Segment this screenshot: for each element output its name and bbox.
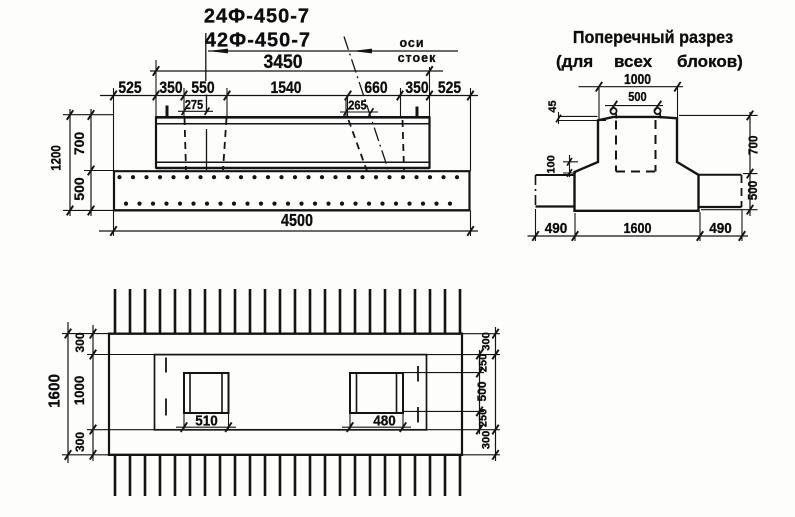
svg-text:350: 350: [159, 79, 182, 98]
svg-text:660: 660: [364, 79, 387, 98]
svg-text:300: 300: [481, 332, 493, 350]
svg-text:(для: (для: [556, 52, 593, 71]
svg-text:490: 490: [545, 220, 568, 237]
svg-text:1600: 1600: [46, 374, 63, 408]
svg-text:блоков): блоков): [677, 52, 743, 71]
svg-text:480: 480: [373, 413, 396, 430]
svg-text:всех: всех: [614, 52, 653, 71]
svg-text:Поперечный разрез: Поперечный разрез: [573, 27, 733, 47]
svg-text:550: 550: [191, 79, 214, 98]
svg-text:510: 510: [195, 413, 218, 430]
svg-text:275: 275: [185, 97, 204, 112]
svg-text:42Ф-450-7: 42Ф-450-7: [205, 30, 311, 52]
svg-text:3450: 3450: [263, 50, 302, 72]
svg-text:350: 350: [405, 79, 428, 98]
svg-text:оси: оси: [399, 36, 424, 50]
svg-text:300: 300: [73, 432, 87, 452]
svg-text:4500: 4500: [281, 211, 313, 231]
svg-text:500: 500: [475, 381, 489, 401]
svg-text:700: 700: [71, 132, 87, 156]
svg-text:525: 525: [438, 79, 462, 98]
svg-text:1200: 1200: [47, 145, 63, 171]
svg-text:100: 100: [546, 155, 558, 173]
svg-text:525: 525: [118, 79, 142, 98]
svg-text:300: 300: [481, 431, 493, 449]
svg-text:500: 500: [745, 181, 760, 201]
svg-text:24Ф-450-7: 24Ф-450-7: [204, 6, 310, 28]
svg-text:700: 700: [746, 135, 761, 155]
svg-text:1600: 1600: [623, 219, 651, 236]
svg-text:490: 490: [709, 220, 732, 237]
svg-text:45: 45: [547, 100, 559, 112]
svg-text:1540: 1540: [271, 79, 302, 98]
svg-text:1000: 1000: [624, 71, 651, 87]
svg-text:300: 300: [73, 332, 87, 352]
svg-text:1000: 1000: [72, 375, 87, 405]
svg-text:265: 265: [348, 98, 367, 113]
svg-text:стоек: стоек: [398, 51, 437, 65]
svg-text:250: 250: [478, 354, 490, 372]
svg-text:500: 500: [71, 177, 87, 201]
svg-text:500: 500: [628, 89, 647, 104]
